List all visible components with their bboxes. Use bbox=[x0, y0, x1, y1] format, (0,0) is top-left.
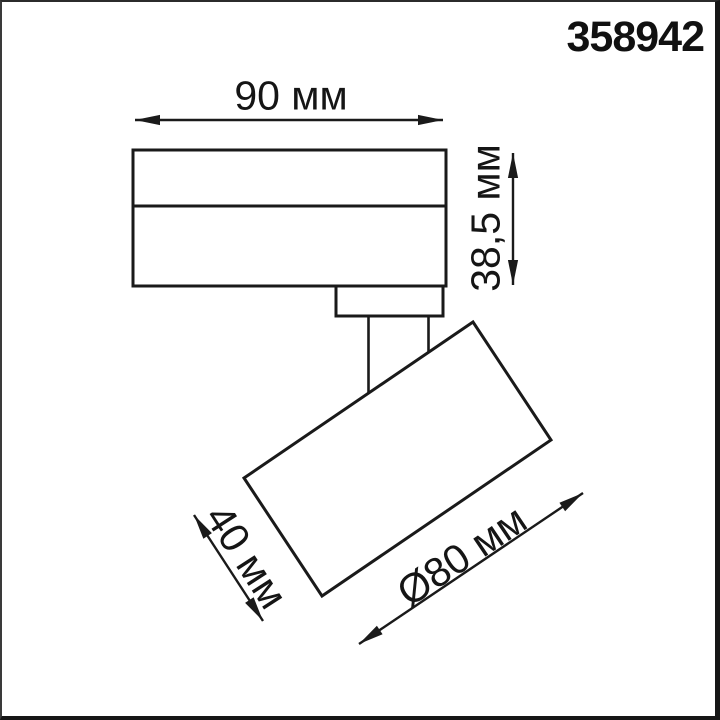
height-dimension-label: 38,5 мм bbox=[466, 144, 507, 292]
spotlight-line-drawing bbox=[0, 0, 720, 720]
product-dimension-drawing: 358942 90 мм 38,5 мм 40 мм Ø80 мм bbox=[0, 0, 720, 720]
width-dimension-label: 90 мм bbox=[234, 76, 347, 117]
body-outline bbox=[133, 150, 446, 286]
track-adapter-outline bbox=[336, 286, 443, 316]
head-outline bbox=[244, 322, 551, 596]
product-code: 358942 bbox=[567, 14, 705, 61]
drawing-canvas: 358942 90 мм 38,5 мм 40 мм Ø80 мм bbox=[0, 0, 720, 720]
